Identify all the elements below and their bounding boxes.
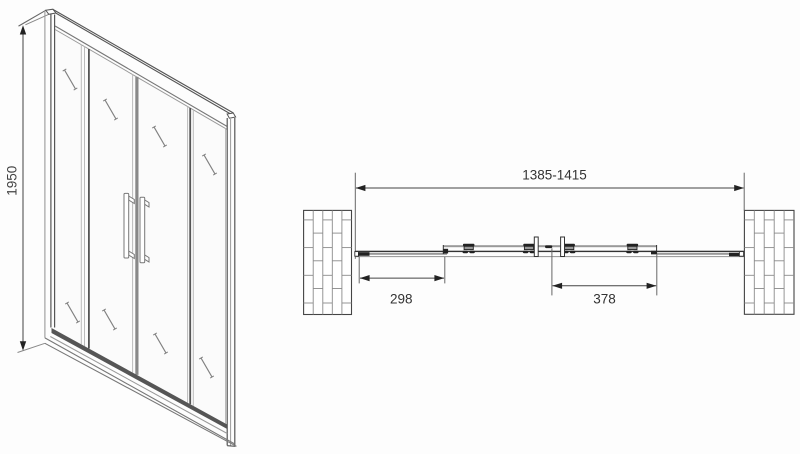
svg-text:298: 298 <box>390 292 413 307</box>
svg-text:1385-1415: 1385-1415 <box>522 168 587 183</box>
svg-text:378: 378 <box>593 292 616 307</box>
svg-text:1950: 1950 <box>4 166 19 196</box>
